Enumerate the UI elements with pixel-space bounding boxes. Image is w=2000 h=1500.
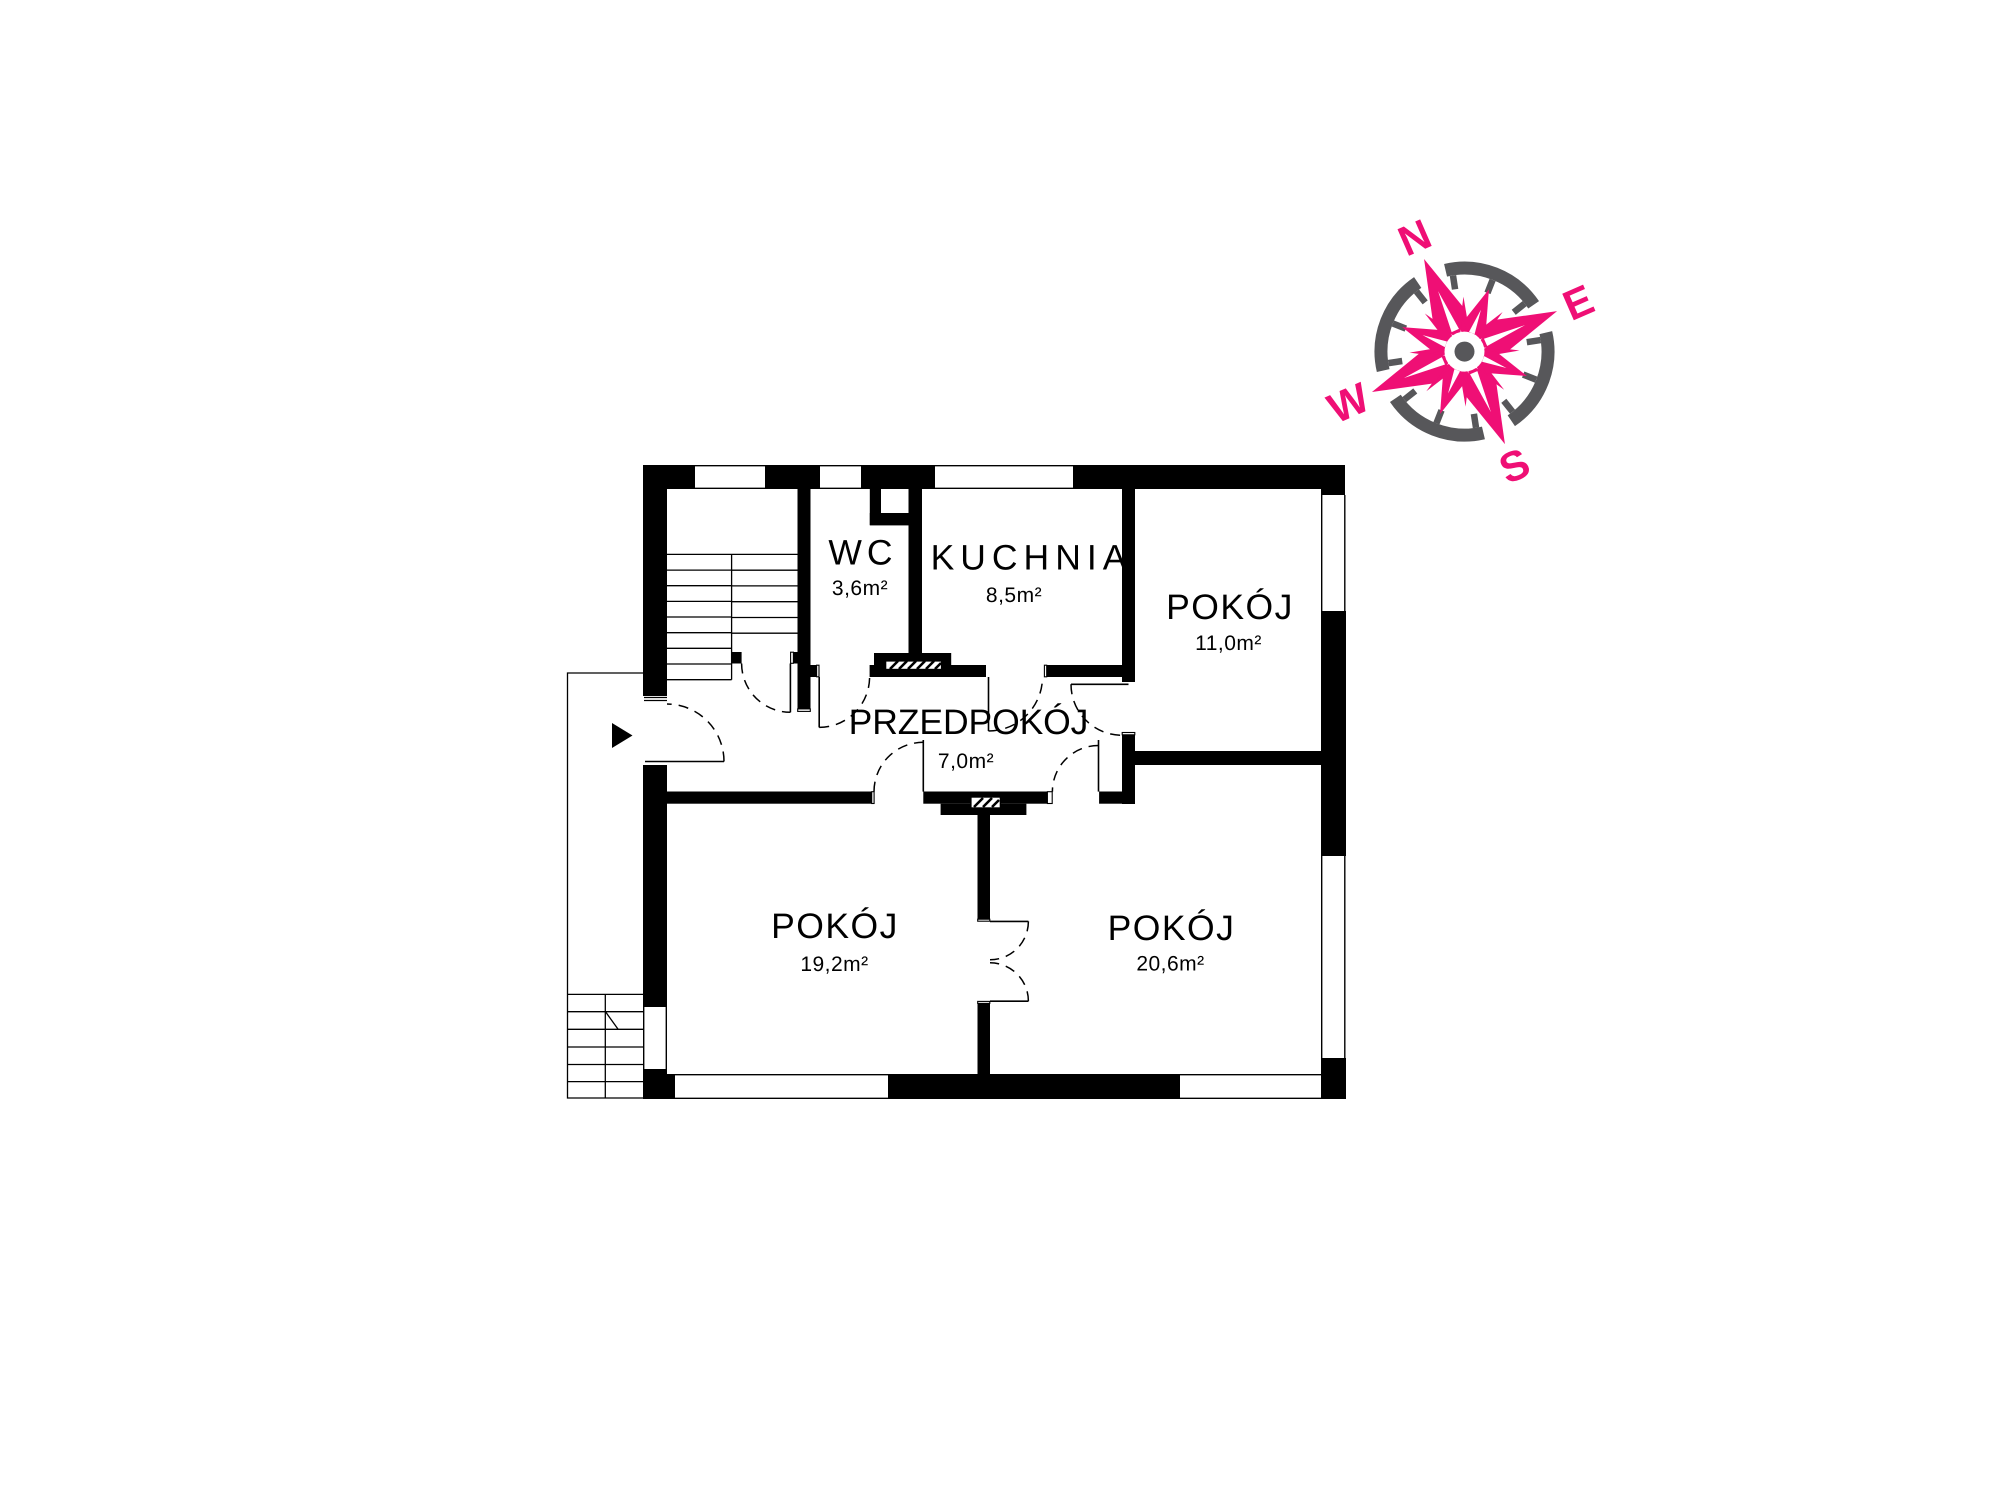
svg-text:WC: WC — [828, 533, 897, 573]
svg-text:KUCHNIA: KUCHNIA — [931, 538, 1133, 578]
svg-text:20,6m²: 20,6m² — [1136, 953, 1204, 976]
svg-text:POKÓJ: POKÓJ — [1166, 587, 1294, 627]
svg-text:POKÓJ: POKÓJ — [771, 906, 899, 946]
svg-text:19,2m²: 19,2m² — [800, 953, 868, 976]
svg-text:3,6m²: 3,6m² — [832, 577, 888, 600]
svg-text:PRZEDPOKÓJ: PRZEDPOKÓJ — [849, 702, 1089, 742]
svg-text:7,0m²: 7,0m² — [938, 750, 994, 773]
svg-text:11,0m²: 11,0m² — [1195, 632, 1262, 655]
svg-text:8,5m²: 8,5m² — [986, 584, 1042, 607]
svg-text:POKÓJ: POKÓJ — [1108, 908, 1236, 948]
